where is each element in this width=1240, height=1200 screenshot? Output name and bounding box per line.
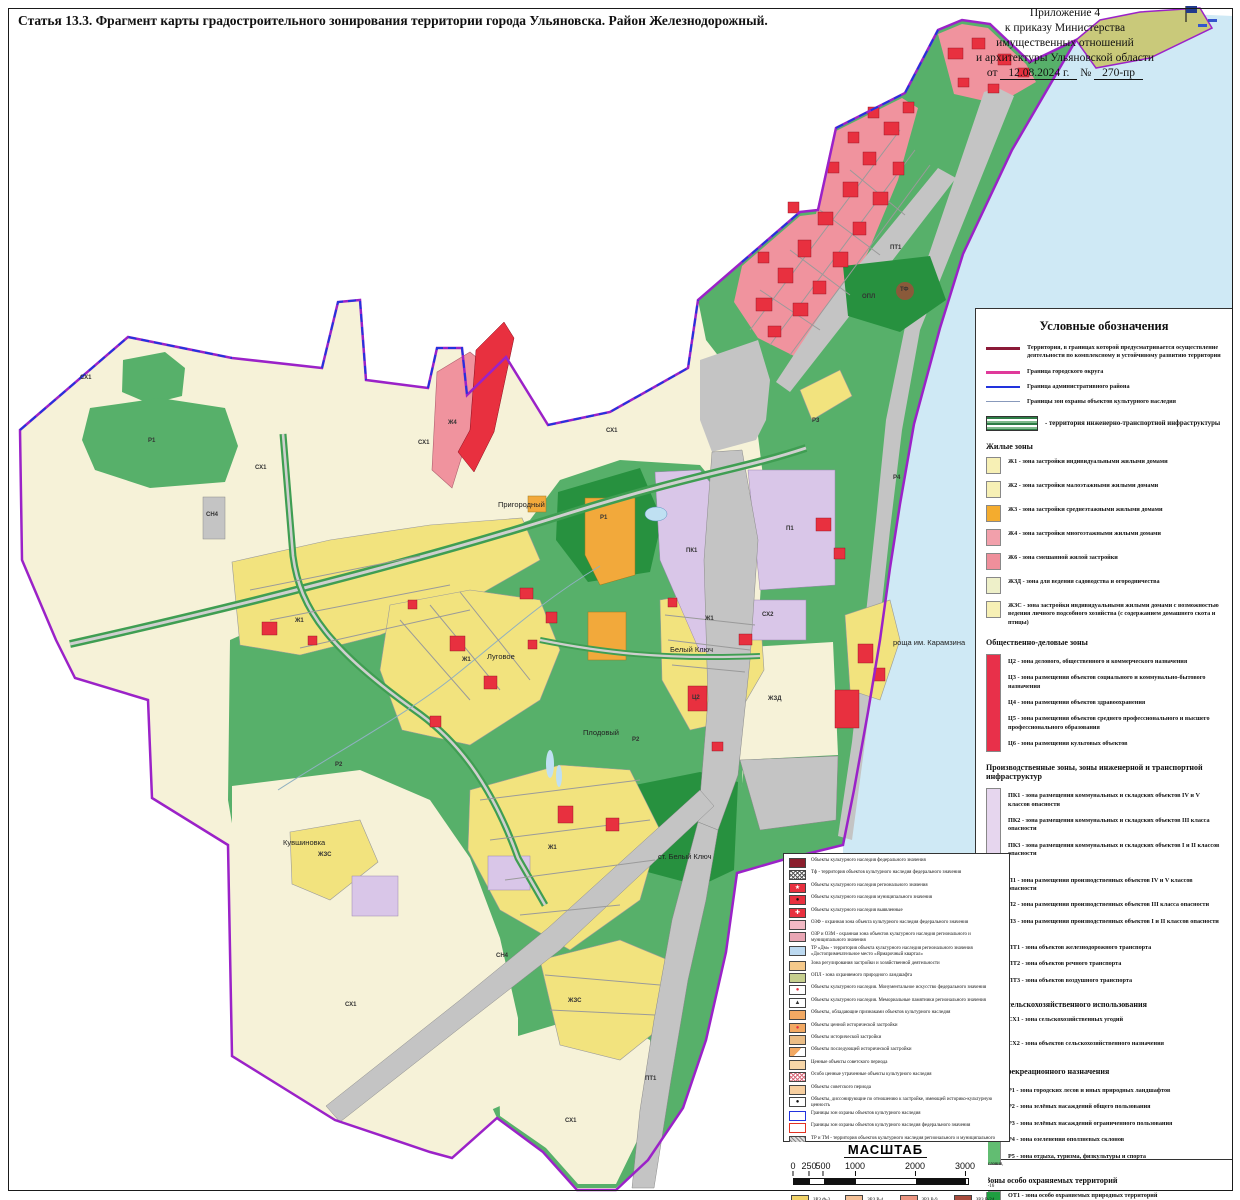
- scale-title: МАСШТАБ: [783, 1142, 988, 1158]
- legend-zone-item: СХ1 - зона сельскохозяйственных угодий: [986, 1016, 1222, 1032]
- order-annotation: Приложение 4 к приказу Министерства имущ…: [930, 6, 1200, 81]
- heritage-swatch: [789, 1035, 806, 1045]
- heritage-swatch: [789, 1085, 806, 1095]
- heritage-swatch: ▲: [789, 998, 806, 1008]
- zone-swatch: [986, 529, 1001, 546]
- order-number: 270-пр: [1094, 67, 1143, 80]
- legend-zone-item: Р3 - зона зелёных насаждений ограниченно…: [1008, 1120, 1172, 1128]
- legend-zone-item: ПТ3 - зона объектов воздушного транспорт…: [1008, 977, 1151, 985]
- scale-tick: 2000: [905, 1161, 925, 1176]
- scale-tick: 0: [790, 1161, 795, 1176]
- scale-bar-segment: [916, 1179, 966, 1184]
- section-agricultural: Зоны сельскохозяйственного использования: [986, 1000, 1222, 1009]
- legend-zone-item: Ц3 - зона размещения объектов социальног…: [1008, 674, 1222, 691]
- legend-zone-item: Ж1 - зона застройки индивидуальными жилы…: [986, 458, 1222, 474]
- zrz-cell: ЗРЗ Ф-3: [791, 1195, 839, 1200]
- zone-swatch: [986, 553, 1001, 570]
- infra-swatch: [986, 416, 1038, 431]
- heritage-legend-item: ОПЛ - зона охраняемого природного ландша…: [789, 973, 1004, 983]
- business-group: Ц2 - зона делового, общественного и комм…: [986, 654, 1222, 753]
- zone-swatch: [986, 577, 1001, 594]
- zone-swatch-bar: [986, 788, 1001, 862]
- zrz-cell: ЗРЗ Р-4: [845, 1195, 893, 1200]
- recreation-group: Р1 - зона городских лесов и иных природн…: [986, 1083, 1222, 1165]
- legend-zone-item: П1 - зона размещения производственных об…: [1008, 877, 1222, 894]
- scale-tick: 3000: [955, 1161, 975, 1176]
- heritage-legend-item: ● Объекты ценной исторической застройки: [789, 1023, 1004, 1033]
- section-protected: Зоны особо охраняемых территорий: [986, 1176, 1222, 1185]
- heritage-swatch: [789, 1060, 806, 1070]
- zone-swatch: [986, 505, 1001, 522]
- legend-zone-item: Ж2 - зона застройки малоэтажными жилыми …: [986, 482, 1222, 498]
- legend-zone-item: Ц6 - зона размещения культовых объектов: [1008, 740, 1222, 748]
- annotation-line: имущественных отношений: [930, 36, 1200, 51]
- heritage-legend-item: Границы зон охраны объектов культурного …: [789, 1123, 1004, 1133]
- boundary-line-sample: [986, 371, 1020, 374]
- legend-zone-item: Ж4 - зона застройки многоэтажными жилыми…: [986, 530, 1222, 546]
- legend-boundary-item: Территория, в границах которой предусмат…: [986, 344, 1222, 361]
- heritage-legend-item: ОЗР и ОЗМ - охранная зона объектов культ…: [789, 932, 1004, 944]
- scale-tick: 250: [801, 1161, 816, 1176]
- legend-zone-item: Р4 - зона озеленения оползневых склонов: [1008, 1136, 1172, 1144]
- order-date: 12.08.2024 г.: [1000, 67, 1077, 80]
- heritage-legend-item: Объекты советского периода: [789, 1085, 1004, 1095]
- zone-swatch-bar: [986, 654, 1001, 753]
- section-recreation: Зоны рекреационного назначения: [986, 1067, 1222, 1076]
- heritage-swatch: ●: [789, 895, 806, 905]
- production-group-p: П1 - зона размещения производственных об…: [986, 873, 1222, 930]
- production-group-pt: ПТ1 - зона объектов железнодорожного тра…: [986, 940, 1222, 989]
- legend-zone-item: Ц2 - зона делового, общественного и комм…: [1008, 658, 1222, 666]
- heritage-legend-item: Объекты последующей исторической застрой…: [789, 1047, 1004, 1057]
- section-residential: Жилые зоны: [986, 442, 1222, 451]
- scale-block: МАСШТАБ 0250500100020003000: [783, 1142, 988, 1192]
- heritage-swatch: [789, 858, 806, 868]
- heritage-legend-item: ● Объекты культурного наследия. Монумент…: [789, 985, 1004, 995]
- annotation-line: Приложение 4: [930, 6, 1200, 21]
- pond-1: [546, 750, 554, 778]
- zoning-map-page: ПригородныйЛуговоеПлодовыйБелый Ключст. …: [0, 0, 1240, 1200]
- boundary-line-sample: [986, 347, 1020, 350]
- heritage-swatch: [789, 932, 806, 942]
- heritage-legend-item: Границы зон охраны объектов культурного …: [789, 1111, 1004, 1121]
- heritage-swatch: [789, 1072, 806, 1082]
- small-lake: [645, 507, 667, 521]
- legend-zone-item: Ц5 - зона размещения объектов среднего п…: [1008, 715, 1222, 732]
- legend-zone-item: П3 - зона размещения производственных об…: [1008, 918, 1222, 926]
- heritage-legend-item: Ценные объекты советского периода: [789, 1060, 1004, 1070]
- heritage-legend-item: ✚ Объекты культурного наследия выявленны…: [789, 908, 1004, 918]
- heritage-territory-circle: [896, 282, 914, 300]
- heritage-swatch: [789, 870, 806, 880]
- legend-boundary-item: Граница городского округа: [986, 368, 1222, 376]
- legend-zone-item: Ц4 - зона размещения объектов здравоохра…: [1008, 699, 1222, 707]
- infra-legend-item: - территория инженерно-транспортной инфр…: [986, 416, 1222, 431]
- production-group-pk: ПК1 - зона размещения коммунальных и скл…: [986, 788, 1222, 862]
- heritage-swatch: ●: [789, 985, 806, 995]
- legend-zone-item: ЖЗС - зона застройки индивидуальными жил…: [986, 602, 1222, 627]
- legend-zone-item: ОТ1 - зона особо охраняемых природных те…: [986, 1192, 1222, 1200]
- scale-tick: 1000: [845, 1161, 865, 1176]
- heritage-swatch: [789, 973, 806, 983]
- heritage-swatch: ★: [789, 883, 806, 893]
- heritage-swatch: [789, 1111, 806, 1121]
- scale-bar-segment: [794, 1179, 810, 1184]
- legend-panel: Условные обозначения Территория, в грани…: [975, 308, 1233, 1160]
- legend-zone-item: СХ2 - зона объектов сельскохозяйственног…: [986, 1040, 1222, 1056]
- zrz-swatch: [954, 1195, 972, 1200]
- legend-zone-item: Р2 - зона зелёных насаждений общего поль…: [1008, 1103, 1172, 1111]
- heritage-legend-item: Тф - территория объектов культурного нас…: [789, 870, 1004, 880]
- legend-zone-item: ПТ1 - зона объектов железнодорожного тра…: [1008, 944, 1151, 952]
- pond-2: [556, 765, 562, 787]
- legend-zone-item: П2 - зона размещения производственных об…: [1008, 901, 1222, 909]
- boundary-legend: Территория, в границах которой предусмат…: [986, 344, 1222, 407]
- legend-zone-item: Р1 - зона городских лесов и иных природн…: [1008, 1087, 1172, 1095]
- heritage-swatch: [789, 1047, 806, 1057]
- legend-boundary-item: Границы зон охраны объектов культурного …: [986, 398, 1222, 406]
- zrz-cell: ЗРЗ Р-24: [954, 1195, 1002, 1200]
- annotation-line: и архитектуры Ульяновской области: [930, 51, 1200, 66]
- scale-tick: 500: [815, 1161, 830, 1176]
- heritage-swatch: ●: [789, 1023, 806, 1033]
- legend-zone-item: ПК2 - зона размещения коммунальных и скл…: [1008, 817, 1222, 834]
- heritage-legend-item: Зона регулирования застройки и хозяйстве…: [789, 961, 1004, 971]
- legend-boundary-item: Граница административного района: [986, 383, 1222, 391]
- heritage-legend-item: ★ Объекты культурного наследия региональ…: [789, 883, 1004, 893]
- heritage-swatch: ✚: [789, 908, 806, 918]
- section-business: Общественно-деловые зоны: [986, 638, 1222, 647]
- legend-zone-item: ЖЗД - зона для ведения садоводства и ого…: [986, 578, 1222, 594]
- scale-bar-segment: [824, 1179, 856, 1184]
- heritage-swatch: [789, 1010, 806, 1020]
- legend-zone-item: ПТ2 - зона объектов речного транспорта: [1008, 960, 1151, 968]
- page-title: Статья 13.3. Фрагмент карты градостроите…: [18, 13, 778, 29]
- zrz-swatch: [845, 1195, 863, 1200]
- heritage-legend-item: ● Объекты, диссонирующие по отношению к …: [789, 1097, 1004, 1109]
- legend-zone-item: ПК3 - зона размещения коммунальных и скл…: [1008, 842, 1222, 859]
- boundary-line-sample: [986, 386, 1020, 388]
- heritage-legend-item: ОЗФ - охранная зона объекта культурного …: [789, 920, 1004, 930]
- legend-zone-item: ПК1 - зона размещения коммунальных и скл…: [1008, 792, 1222, 809]
- heritage-legend-item: Особо ценные утраченные объекты культурн…: [789, 1072, 1004, 1082]
- annotation-line: к приказу Министерства: [930, 21, 1200, 36]
- legend-zone-item: Ж6 - зона смешанной жилой застройки: [986, 554, 1222, 570]
- zone-swatch: [986, 457, 1001, 474]
- scale-bar-segment: [810, 1179, 824, 1184]
- scale-bar-segment: [856, 1179, 916, 1184]
- zrz-swatch: [791, 1195, 809, 1200]
- heritage-legend-item: ▲ Объекты культурного наследия. Мемориал…: [789, 998, 1004, 1008]
- zone-swatch: [986, 481, 1001, 498]
- heritage-swatch: [789, 920, 806, 930]
- zrz-cell: ЗРЗ Р-9: [900, 1195, 948, 1200]
- annotation-issued-line: от 12.08.2024 г. № 270-пр: [930, 66, 1200, 81]
- heritage-legend-item: ТР «Дм» - территория объекта культурного…: [789, 946, 1004, 958]
- heritage-legend-item: Объекты, обладающие признаками объектов …: [789, 1010, 1004, 1020]
- legend-title: Условные обозначения: [986, 319, 1222, 334]
- legend-zone-item: Р5 - зона отдыха, туризма, физкультуры и…: [1008, 1153, 1172, 1161]
- boundary-line-sample: [986, 401, 1020, 402]
- section-production: Производственные зоны, зоны инженерной и…: [986, 763, 1222, 781]
- heritage-legend-item: Объекты исторической застройки: [789, 1035, 1004, 1045]
- zrz-swatch: [900, 1195, 918, 1200]
- heritage-swatch: [789, 1123, 806, 1133]
- heritage-swatch: [789, 946, 806, 956]
- heritage-legend-item: ● Объекты культурного наследия муниципал…: [789, 895, 1004, 905]
- scale-bar: 0250500100020003000: [793, 1161, 969, 1191]
- heritage-swatch: ●: [789, 1097, 806, 1107]
- heritage-legend-item: Объекты культурного наследия федеральног…: [789, 858, 1004, 868]
- heritage-swatch: [789, 961, 806, 971]
- heritage-legend-panel: Объекты культурного наследия федеральног…: [783, 853, 1010, 1142]
- zone-swatch: [986, 601, 1001, 618]
- legend-zone-item: Ж3 - зона застройки среднеэтажными жилым…: [986, 506, 1222, 522]
